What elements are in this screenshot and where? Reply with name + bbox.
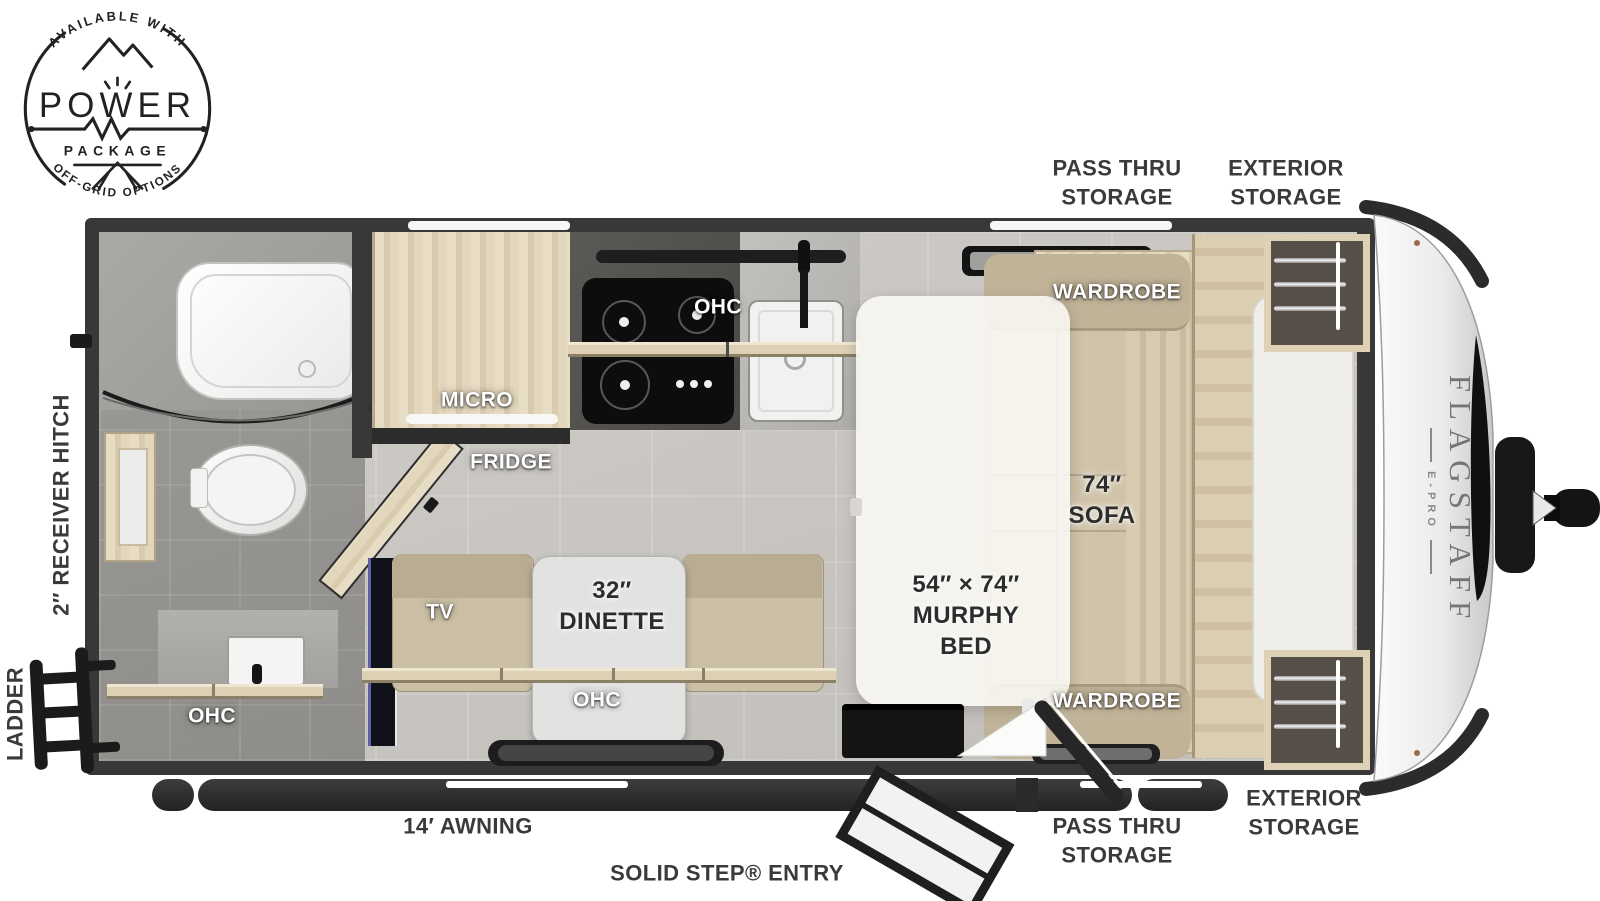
toilet-hinge bbox=[190, 468, 208, 508]
label-wardrobe-top: WARDROBE bbox=[1053, 278, 1181, 305]
window-top-kitchen bbox=[408, 221, 570, 230]
door-opening bbox=[958, 698, 1046, 756]
label-murphy-bed: 54″ × 74″ MURPHY BED bbox=[912, 569, 1019, 663]
cap-rivet bbox=[1414, 750, 1420, 756]
label-fridge: FRIDGE bbox=[470, 448, 552, 475]
badge-sub: PACKAGE bbox=[64, 143, 172, 159]
line-dot-left bbox=[28, 126, 34, 132]
bath-sink bbox=[227, 636, 305, 686]
murphy-bed-latch bbox=[850, 498, 862, 516]
awning-bar-left-cap bbox=[152, 779, 194, 811]
bath-kitchen-wall bbox=[352, 232, 372, 458]
label-solid-step-entry: SOLID STEP® ENTRY bbox=[610, 860, 844, 889]
window-top-living bbox=[990, 221, 1172, 230]
rear-wall-stub bbox=[70, 334, 92, 348]
awning-bar-highlight bbox=[446, 781, 628, 788]
burner-top-left bbox=[602, 300, 646, 344]
flagstaff-epro-logo: FLAGSTAFF E-PRO bbox=[1417, 336, 1487, 666]
cooktop-knob-dot bbox=[690, 380, 698, 388]
open-door-panel bbox=[1042, 708, 1116, 796]
propane-cover bbox=[1495, 437, 1535, 573]
label-wardrobe-bottom: WARDROBE bbox=[1053, 687, 1181, 714]
label-dinette: 32″ DINETTE bbox=[559, 575, 664, 637]
brand-rule bbox=[1431, 428, 1433, 462]
line-dot-right bbox=[201, 126, 207, 132]
kitchen-ohc-seam bbox=[726, 342, 729, 357]
mountains-icon bbox=[83, 39, 153, 70]
label-micro: MICRO bbox=[441, 386, 513, 413]
burner-bottom bbox=[600, 360, 650, 410]
tub-drain bbox=[298, 360, 316, 378]
dinette-bench-right-back bbox=[682, 554, 822, 598]
svg-text:AVAILABLE WITH: AVAILABLE WITH bbox=[45, 8, 190, 50]
toilet-lid bbox=[204, 454, 296, 526]
kitchen-faucet-stem bbox=[800, 270, 808, 328]
label-tv: TV bbox=[426, 598, 454, 625]
micro-shadow bbox=[372, 428, 570, 444]
rear-ladder bbox=[24, 642, 120, 778]
floorplan-page: AVAILABLE WITH OFF-GRID OPTIONS POWER PA… bbox=[0, 0, 1600, 901]
door-edge-highlight bbox=[1050, 702, 1122, 788]
label-pass-thru-storage-top: PASS THRU STORAGE bbox=[1052, 154, 1181, 211]
label-ladder: LADDER bbox=[2, 667, 31, 761]
dinette-ohc-seam bbox=[500, 668, 503, 683]
brand-model: E-PRO bbox=[1426, 471, 1438, 531]
svg-text:OFF-GRID OPTIONS: OFF-GRID OPTIONS bbox=[50, 161, 184, 200]
badge-arc-bottom-text: OFF-GRID OPTIONS bbox=[50, 161, 184, 200]
step-bracket bbox=[1016, 778, 1038, 812]
bath-faucet bbox=[252, 664, 262, 684]
bath-ohc-edge bbox=[107, 684, 323, 699]
brand-name: FLAGSTAFF bbox=[1443, 375, 1479, 628]
badge-arc-top-text: AVAILABLE WITH bbox=[45, 8, 190, 50]
label-ohc-bath: OHC bbox=[188, 702, 236, 729]
micro-trim bbox=[406, 414, 558, 424]
badge-word: POWER bbox=[39, 86, 196, 125]
label-ohc-dinette: OHC bbox=[573, 686, 621, 713]
bathtub-inner-contour bbox=[190, 274, 352, 388]
label-receiver-hitch: 2″ RECEIVER HITCH bbox=[48, 394, 77, 615]
label-awning: 14′ AWNING bbox=[403, 813, 532, 842]
bath-mirror bbox=[118, 448, 148, 546]
bath-ohc-seam bbox=[212, 684, 215, 699]
label-exterior-storage-top: EXTERIOR STORAGE bbox=[1228, 154, 1344, 211]
cooktop-knob-dot bbox=[676, 380, 684, 388]
cooktop-knob-dot bbox=[704, 380, 712, 388]
label-sofa: 74″ SOFA bbox=[1069, 469, 1136, 531]
dinette-ohc-seam bbox=[612, 668, 615, 683]
brand-rule bbox=[1431, 540, 1433, 574]
label-exterior-storage-bottom: EXTERIOR STORAGE bbox=[1246, 784, 1362, 841]
kitchen-ohc-edge bbox=[568, 342, 860, 357]
label-ohc-kitchen: OHC bbox=[694, 293, 742, 320]
kitchen-faucet bbox=[798, 240, 810, 274]
label-pass-thru-storage-bottom: PASS THRU STORAGE bbox=[1052, 812, 1181, 869]
dinette-bench-left-back bbox=[392, 554, 532, 598]
solid-step bbox=[841, 771, 1008, 901]
cap-rivet bbox=[1414, 240, 1420, 246]
power-package-badge: AVAILABLE WITH OFF-GRID OPTIONS POWER PA… bbox=[15, 4, 220, 209]
